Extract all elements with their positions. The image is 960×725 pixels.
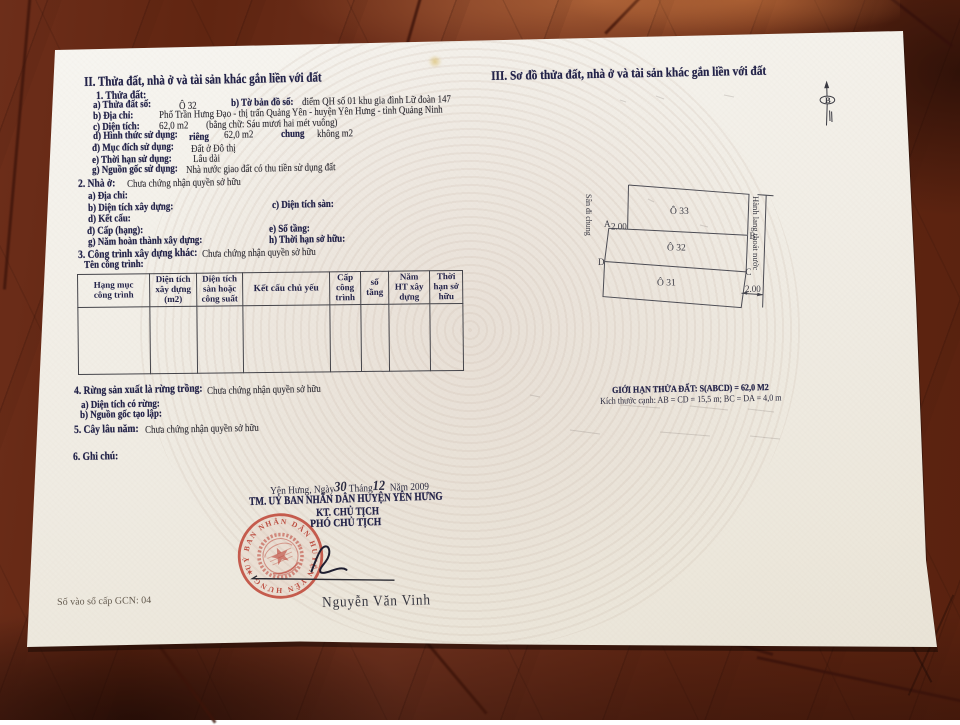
svg-text:B: B bbox=[750, 231, 756, 241]
svg-text:B: B bbox=[825, 95, 831, 105]
svg-text:Ô 33: Ô 33 bbox=[670, 205, 689, 217]
svg-text:A: A bbox=[604, 219, 611, 229]
svg-text:D: D bbox=[598, 257, 605, 267]
svg-text:C: C bbox=[746, 267, 752, 277]
svg-text:2.00: 2.00 bbox=[611, 222, 627, 232]
svg-text:Ô 32: Ô 32 bbox=[667, 242, 686, 254]
svg-text:Ô 31: Ô 31 bbox=[657, 277, 676, 289]
svg-text:2.00: 2.00 bbox=[745, 284, 761, 294]
